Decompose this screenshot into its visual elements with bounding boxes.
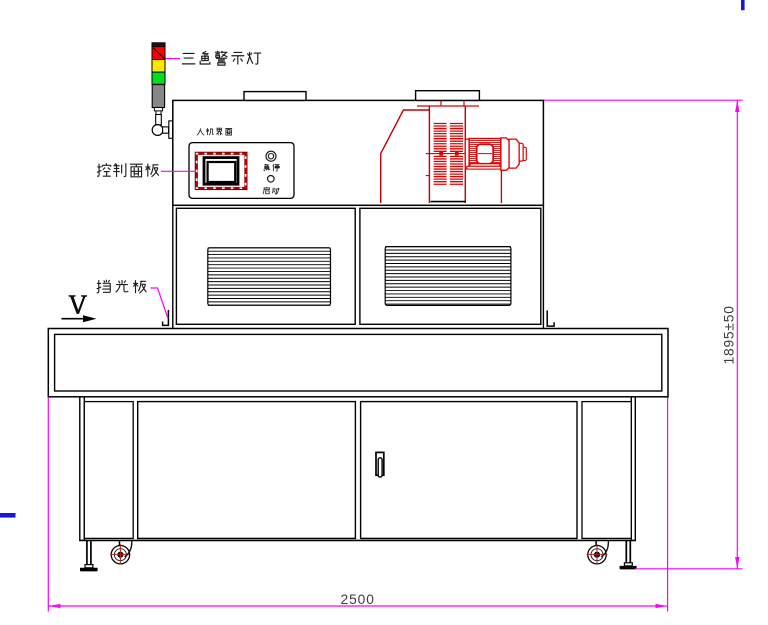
svg-text:1895±50: 1895±50 [722, 305, 737, 364]
svg-text:2500: 2500 [341, 592, 375, 607]
